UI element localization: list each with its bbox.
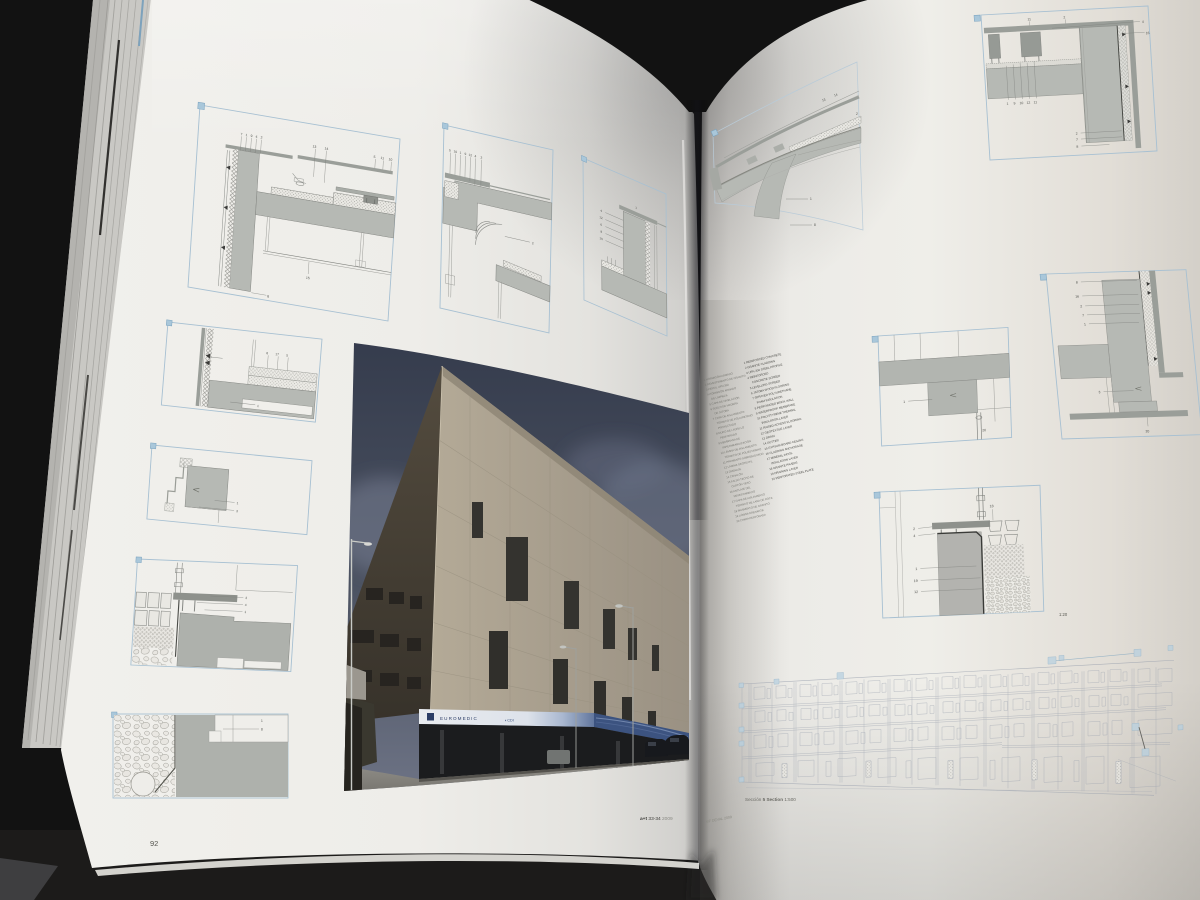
- svg-text:20: 20: [982, 428, 986, 432]
- svg-text:8: 8: [261, 728, 263, 732]
- svg-text:2: 2: [913, 527, 915, 531]
- svg-text:11: 11: [1027, 17, 1031, 21]
- svg-text:1: 1: [261, 719, 263, 723]
- svg-text:4: 4: [913, 534, 915, 538]
- svg-text:EUROMEDIC: EUROMEDIC: [440, 716, 478, 721]
- svg-text:1: 1: [245, 133, 247, 137]
- svg-text:10: 10: [388, 157, 392, 162]
- svg-text:8: 8: [814, 223, 816, 227]
- svg-text:2: 2: [1063, 15, 1065, 19]
- svg-text:18: 18: [990, 504, 994, 508]
- svg-text:◐CDI: ◐CDI: [505, 719, 514, 723]
- svg-text:9: 9: [464, 152, 466, 156]
- svg-text:13: 13: [312, 144, 316, 149]
- svg-text:1: 1: [810, 197, 812, 201]
- svg-text:8: 8: [267, 294, 269, 298]
- svg-text:4: 4: [1142, 20, 1144, 24]
- svg-text:12: 12: [1026, 101, 1030, 105]
- svg-text:5: 5: [449, 148, 451, 152]
- svg-text:14: 14: [324, 146, 328, 151]
- svg-text:2: 2: [1076, 132, 1078, 136]
- svg-text:7: 7: [1076, 138, 1078, 142]
- svg-text:1: 1: [903, 400, 905, 404]
- svg-text:92: 92: [150, 839, 158, 848]
- svg-text:7: 7: [240, 132, 242, 136]
- svg-text:1:20: 1:20: [1059, 612, 1068, 617]
- svg-text:16: 16: [1146, 31, 1150, 35]
- svg-text:17: 17: [275, 352, 279, 356]
- svg-text:2: 2: [260, 136, 262, 140]
- svg-text:2: 2: [532, 241, 534, 245]
- svg-text:9: 9: [1013, 101, 1015, 105]
- svg-text:12: 12: [468, 153, 472, 158]
- svg-text:19: 19: [914, 579, 918, 583]
- svg-text:11: 11: [1033, 100, 1037, 104]
- svg-text:10: 10: [1019, 101, 1023, 105]
- svg-text:5: 5: [373, 155, 375, 159]
- svg-text:12: 12: [914, 590, 918, 594]
- svg-text:11: 11: [380, 156, 384, 161]
- svg-text:2: 2: [480, 156, 482, 160]
- svg-text:1: 1: [1006, 102, 1008, 106]
- svg-text:2: 2: [856, 112, 858, 116]
- svg-text:8: 8: [1076, 145, 1078, 149]
- svg-text:4: 4: [474, 154, 476, 158]
- svg-text:15: 15: [306, 276, 310, 281]
- svg-text:a+t 33-34 2009: a+t 33-34 2009: [640, 816, 673, 822]
- svg-text:4: 4: [255, 135, 257, 139]
- svg-text:1: 1: [459, 151, 461, 155]
- svg-text:10: 10: [453, 149, 457, 154]
- svg-text:1: 1: [915, 567, 917, 571]
- svg-text:20: 20: [1145, 429, 1149, 433]
- svg-text:16: 16: [1075, 295, 1079, 299]
- svg-text:9: 9: [250, 134, 252, 138]
- svg-text:Sección 5 Section 1:500: Sección 5 Section 1:500: [745, 797, 796, 802]
